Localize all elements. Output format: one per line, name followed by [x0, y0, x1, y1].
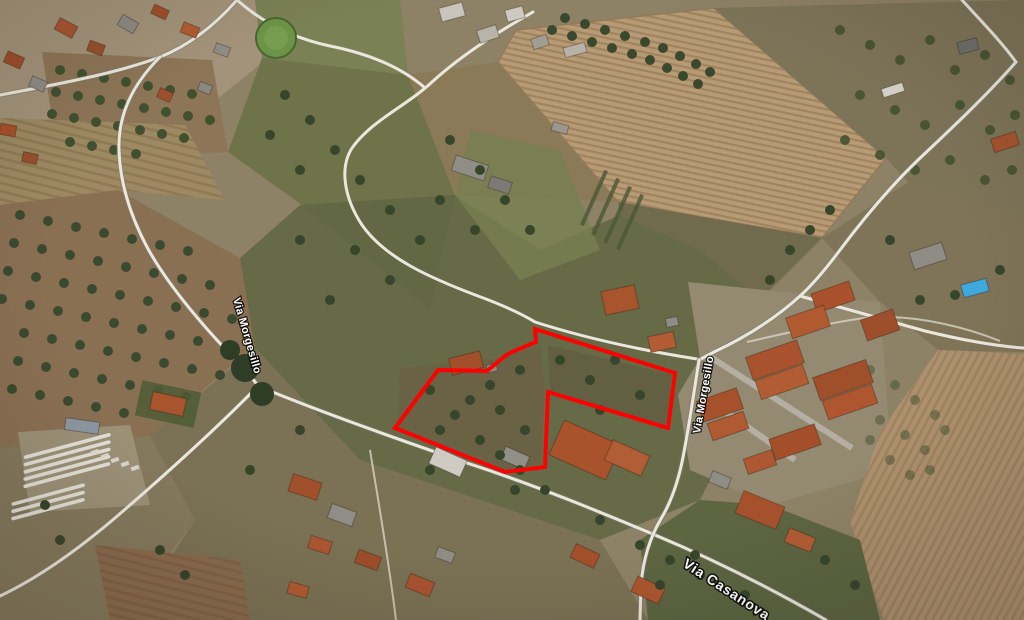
vignette-overlay: [0, 0, 1024, 620]
aerial-scene: Via Casanova Via Morgesillo Via Morgesil…: [0, 0, 1024, 620]
satellite-map-view[interactable]: Via Casanova Via Morgesillo Via Morgesil…: [0, 0, 1024, 620]
